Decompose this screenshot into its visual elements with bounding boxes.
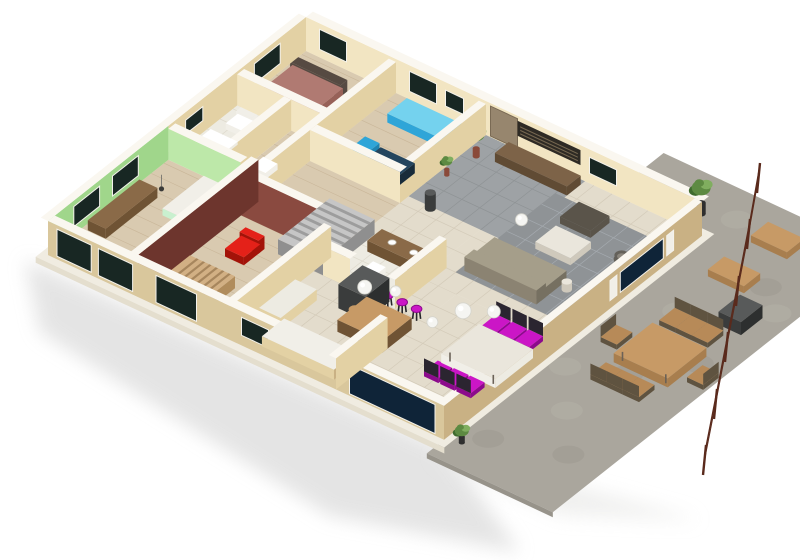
pendant-lamp-small [159,186,164,191]
entry-plant-2-pot-top [444,168,449,171]
corner-plant-leaves [457,424,464,430]
pendant-lamp-highlight [458,306,464,312]
pendant-lamp-globe [427,317,438,328]
pendant-lamp-highlight [429,319,433,323]
concrete-mottle [760,304,792,322]
entry-plant-pot [473,146,480,158]
pendant-lamp-highlight [490,307,495,312]
stool-seat [411,305,422,312]
pendant-lamp [487,305,500,318]
concrete-mottle [472,430,504,448]
bar-stool [411,305,422,321]
side-table-top [562,278,572,284]
entry-plant-pot-top [473,146,480,150]
terrace-plant-leaves [695,179,705,187]
pendant-lamp-highlight [392,288,396,292]
concrete-mottle [721,211,753,229]
pendant-lamp-highlight [360,283,365,288]
floor-plan-rendering [0,0,800,560]
pendant-lamp-globe [390,286,401,297]
concrete-mottle [551,402,583,420]
pendant-lamp-globe [455,303,471,319]
water-heater-top [425,189,436,196]
pendant-lamp-globe [516,214,528,226]
pendant-lamp-globe [358,280,372,294]
pendant-lamp [427,317,438,328]
entry-plant-2-pot [444,168,449,177]
pendant-lamp [358,280,372,294]
side-table [562,278,572,292]
stool-seat [397,299,408,306]
pendant-lamp [455,303,471,319]
water-heater [425,189,436,212]
concrete-mottle [552,446,584,464]
pendant-lamp [516,214,528,226]
pendant-lamp-highlight [518,216,522,220]
pendant-lamp [390,286,401,297]
bar-counter-round-end [349,305,361,313]
entry-plant-2-leaves [443,156,449,160]
vanity-sink [388,240,396,245]
pendant-lamp-globe [487,305,500,318]
floor-plan-canvas [0,0,800,560]
corner-plant-pot [459,435,465,445]
